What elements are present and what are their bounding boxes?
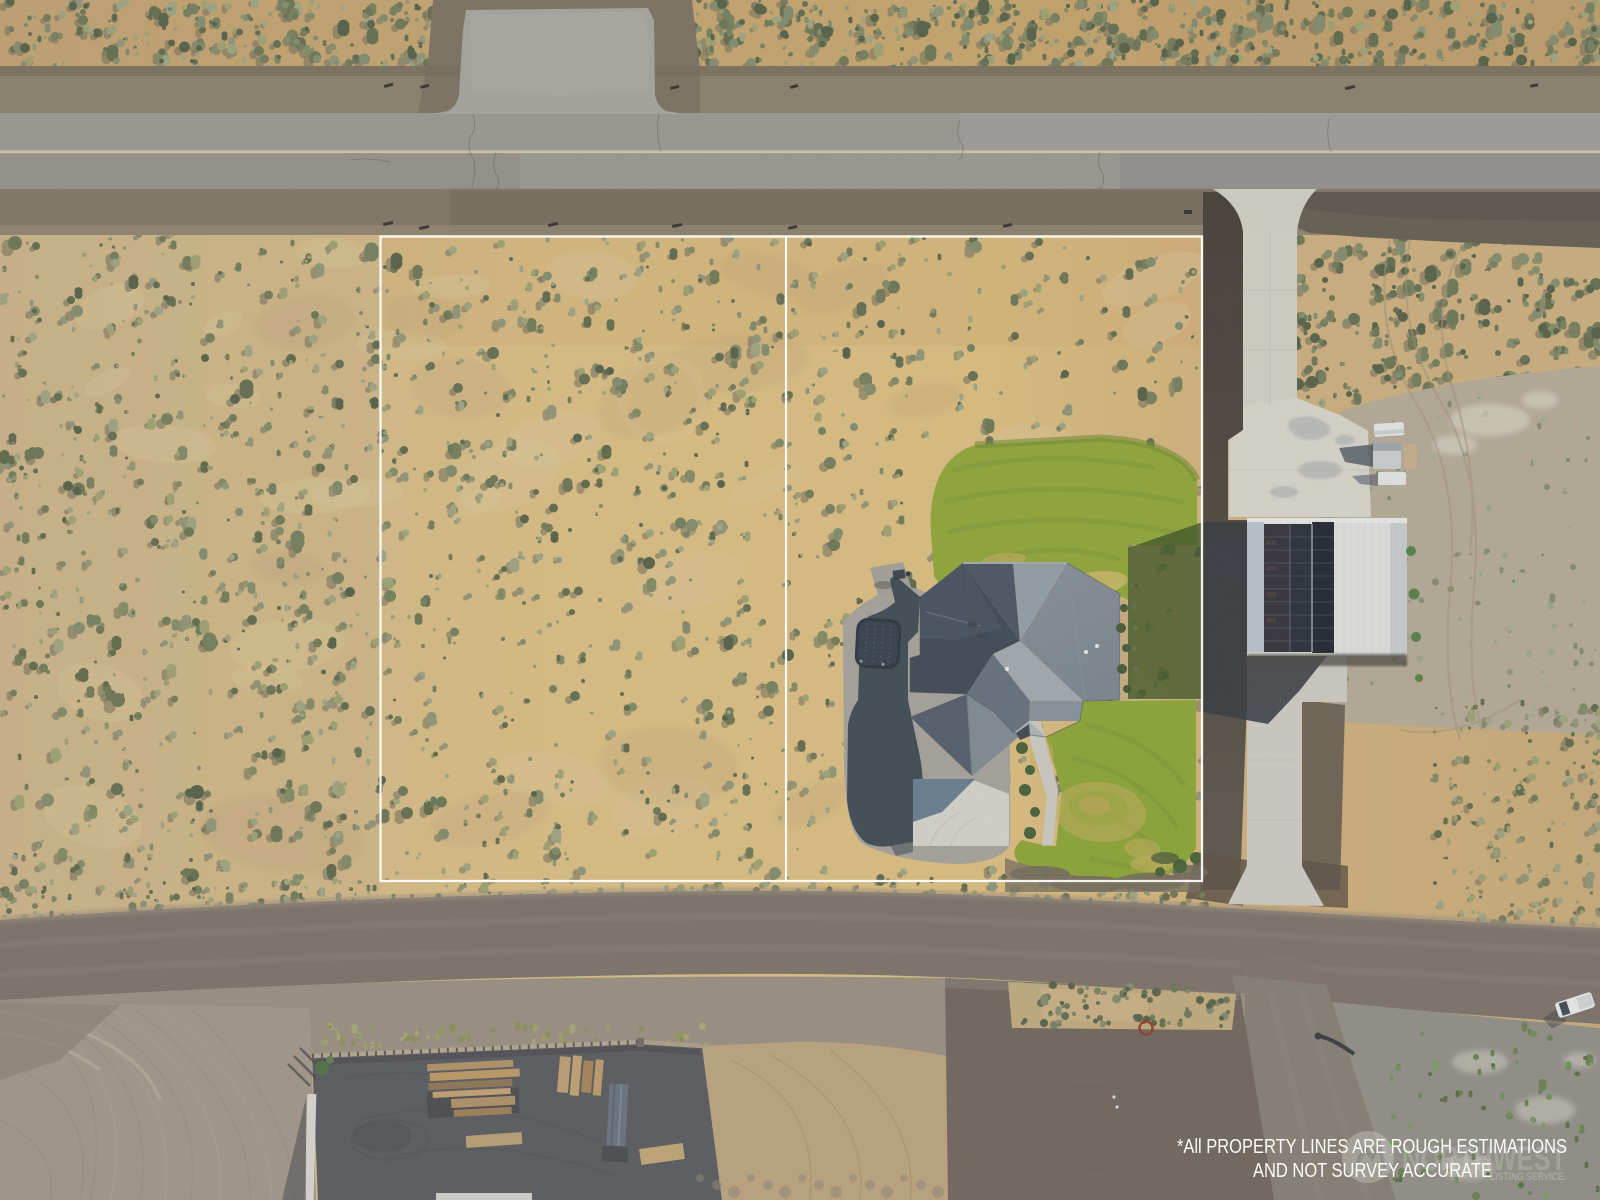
svg-text:*All PROPERTY LINES ARE ROUGH: *All PROPERTY LINES ARE ROUGH ESTIMATION…	[1177, 1135, 1567, 1158]
svg-text:LISTING SERVICE.: LISTING SERVICE.	[1490, 1171, 1566, 1183]
svg-text:AND NOT SURVEY ACCURATE: AND NOT SURVEY ACCURATE	[1253, 1159, 1492, 1182]
